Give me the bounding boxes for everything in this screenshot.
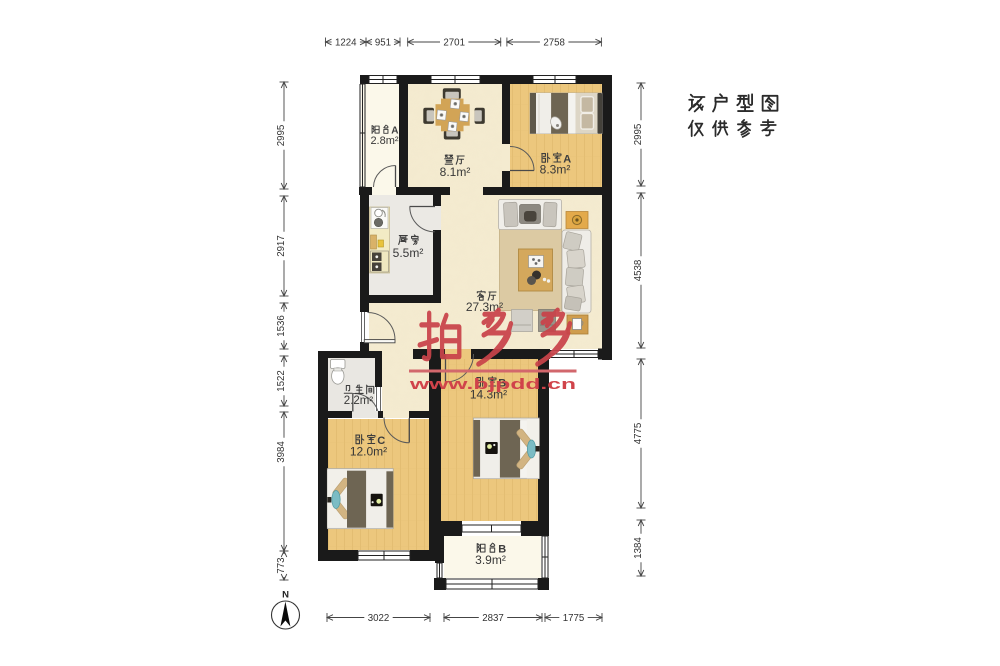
- svg-text:www.bjpdd.cn: www.bjpdd.cn: [408, 376, 576, 393]
- svg-text:12.0m²: 12.0m²: [350, 445, 387, 459]
- svg-text:3984: 3984: [276, 441, 287, 463]
- svg-text:5.5m²: 5.5m²: [393, 246, 424, 260]
- svg-text:2995: 2995: [276, 125, 287, 147]
- svg-text:1384: 1384: [633, 537, 644, 559]
- svg-text:3.9m²: 3.9m²: [475, 553, 506, 567]
- svg-text:2837: 2837: [482, 613, 504, 624]
- svg-text:N: N: [282, 590, 289, 601]
- svg-text:2758: 2758: [543, 37, 565, 48]
- svg-text:4775: 4775: [633, 423, 644, 445]
- svg-text:2917: 2917: [276, 235, 287, 257]
- svg-text:2.2m²: 2.2m²: [344, 395, 374, 407]
- svg-text:3022: 3022: [368, 613, 390, 624]
- svg-text:4538: 4538: [633, 260, 644, 282]
- svg-text:2701: 2701: [443, 37, 465, 48]
- svg-text:2.8m²: 2.8m²: [370, 135, 398, 147]
- svg-text:773: 773: [276, 557, 287, 573]
- svg-text:1536: 1536: [276, 315, 287, 337]
- svg-text:1775: 1775: [563, 613, 585, 624]
- svg-text:8.1m²: 8.1m²: [440, 165, 471, 179]
- svg-text:1224: 1224: [335, 37, 357, 48]
- svg-text:8.3m²: 8.3m²: [540, 163, 571, 177]
- svg-text:2995: 2995: [633, 124, 644, 146]
- svg-text:951: 951: [375, 37, 391, 48]
- svg-text:1522: 1522: [276, 370, 287, 392]
